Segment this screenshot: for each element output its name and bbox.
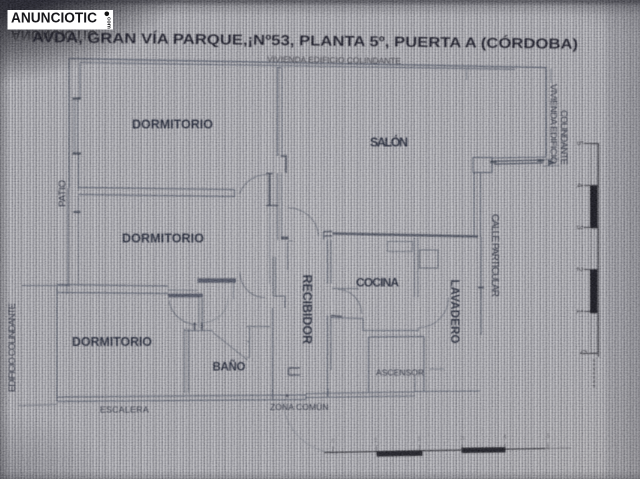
svg-text:ANUNCIOTIC: ANUNCIOTIC xyxy=(11,11,97,27)
svg-text:com: com xyxy=(105,17,111,29)
svg-text:ANUNCIOTIC: ANUNCIOTIC xyxy=(11,27,97,43)
